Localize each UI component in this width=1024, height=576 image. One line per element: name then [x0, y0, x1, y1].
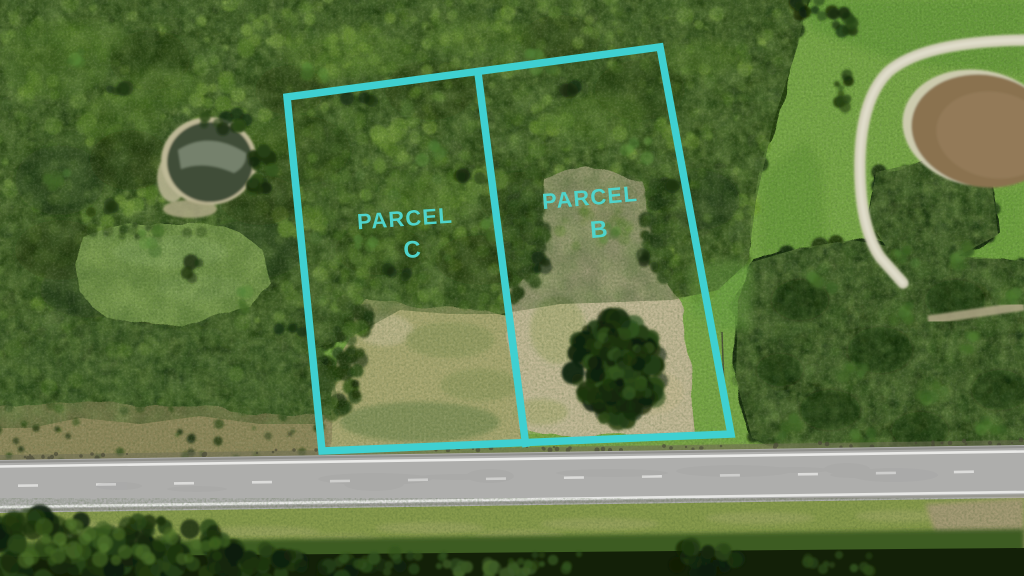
svg-text:C: C: [403, 236, 422, 264]
svg-text:B: B: [589, 216, 609, 244]
